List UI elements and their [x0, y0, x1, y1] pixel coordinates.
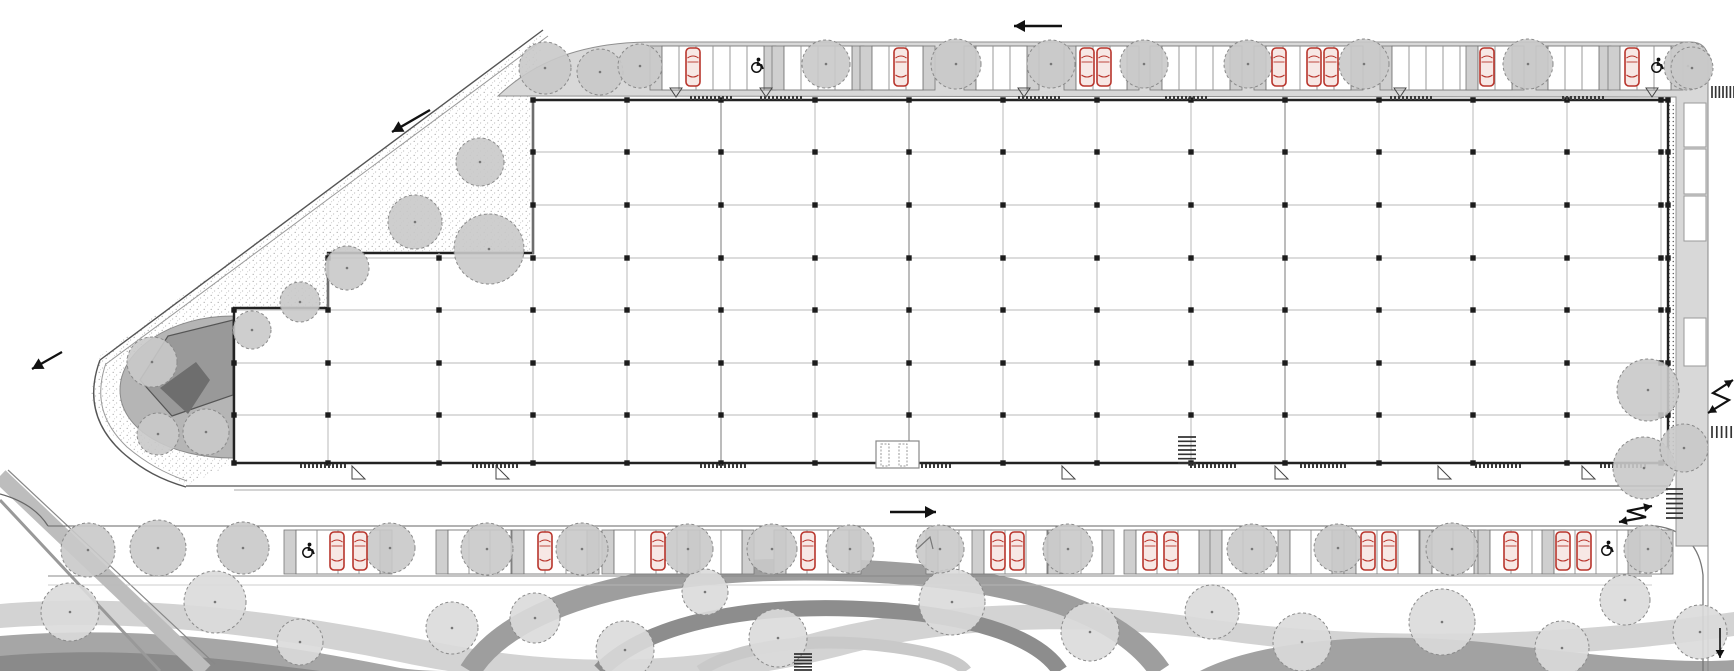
column-marker	[718, 255, 723, 260]
parked-car	[1097, 48, 1111, 86]
column-marker	[718, 360, 723, 365]
tree-trunk-dot	[687, 548, 690, 551]
tree-trunk-dot	[1247, 63, 1250, 66]
bay-divider	[972, 530, 984, 574]
bay-divider	[1542, 530, 1554, 574]
column-marker	[812, 255, 817, 260]
bay-divider	[1478, 530, 1490, 574]
parked-car	[1577, 532, 1591, 570]
tree-trunk-dot	[1561, 647, 1564, 650]
column-marker	[718, 412, 723, 417]
tree-trunk-dot	[599, 71, 602, 74]
column-marker	[1470, 97, 1475, 102]
bay-divider	[284, 530, 296, 574]
column-marker	[1000, 149, 1005, 154]
column-marker	[812, 202, 817, 207]
column-marker	[436, 255, 441, 260]
column-marker	[1564, 360, 1569, 365]
column-marker	[1282, 97, 1287, 102]
tree-trunk-dot	[1211, 611, 1214, 614]
column-marker	[1470, 202, 1475, 207]
site-plan-canvas	[0, 0, 1734, 671]
column-marker	[1376, 149, 1381, 154]
tree-trunk-dot	[1143, 63, 1146, 66]
arrow-head	[1643, 503, 1652, 512]
column-marker	[1658, 202, 1663, 207]
bay-divider	[1278, 530, 1290, 574]
parked-car	[1361, 532, 1375, 570]
column-marker	[1564, 460, 1569, 465]
door-swing-mark	[352, 466, 365, 479]
column-marker	[1376, 307, 1381, 312]
column-marker	[530, 412, 535, 417]
column-marker	[1282, 412, 1287, 417]
column-marker	[1564, 307, 1569, 312]
tree-trunk-dot	[87, 549, 90, 552]
bay-divider	[1102, 530, 1114, 574]
handicap-icon	[1657, 58, 1661, 62]
column-marker	[1564, 202, 1569, 207]
column-marker	[624, 412, 629, 417]
column-marker	[1665, 149, 1670, 154]
tree-trunk-dot	[299, 641, 302, 644]
parked-car	[1556, 532, 1570, 570]
tree-trunk-dot	[1301, 641, 1304, 644]
tree-trunk-dot	[486, 548, 489, 551]
tree-trunk-dot	[624, 649, 627, 652]
column-marker	[1564, 149, 1569, 154]
door-swing-mark	[1062, 466, 1075, 479]
column-marker	[906, 360, 911, 365]
parked-car	[1080, 48, 1094, 86]
column-marker	[1470, 360, 1475, 365]
north-parking-bay-group	[976, 46, 1027, 90]
tree-trunk-dot	[825, 63, 828, 66]
column-marker	[624, 202, 629, 207]
parked-car	[1164, 532, 1178, 570]
column-marker	[1000, 307, 1005, 312]
parked-car	[1307, 48, 1321, 86]
tree-trunk-dot	[1251, 548, 1254, 551]
tree-trunk-dot	[1683, 447, 1686, 450]
column-marker	[1376, 202, 1381, 207]
tree-trunk-dot	[299, 301, 302, 304]
column-marker	[1188, 255, 1193, 260]
parked-car	[330, 532, 344, 570]
column-marker	[1470, 149, 1475, 154]
column-marker	[1376, 460, 1381, 465]
bay-divider	[1124, 530, 1136, 574]
column-marker	[718, 149, 723, 154]
column-marker	[624, 307, 629, 312]
door-swing-mark	[1438, 466, 1451, 479]
tree-trunk-dot	[346, 267, 349, 270]
tree-trunk-dot	[242, 547, 245, 550]
tree-trunk-dot	[771, 548, 774, 551]
column-marker	[624, 460, 629, 465]
column-marker	[1376, 360, 1381, 365]
tree-trunk-dot	[1451, 548, 1454, 551]
column-marker	[812, 412, 817, 417]
column-marker	[1658, 97, 1663, 102]
column-marker	[1665, 255, 1670, 260]
tree-trunk-dot	[1643, 467, 1646, 470]
tree-trunk-dot	[955, 63, 958, 66]
bay-divider	[1199, 530, 1211, 574]
arrow-head	[925, 506, 936, 518]
tree-trunk-dot	[1647, 548, 1650, 551]
column-marker	[624, 360, 629, 365]
door-swing-mark	[1582, 466, 1595, 479]
column-marker	[1470, 460, 1475, 465]
column-marker	[906, 255, 911, 260]
column-marker	[1282, 460, 1287, 465]
column-marker	[530, 255, 535, 260]
column-marker	[1665, 97, 1670, 102]
column-marker	[325, 307, 330, 312]
column-marker	[1658, 307, 1663, 312]
bay-divider	[512, 530, 524, 574]
parked-car	[1382, 532, 1396, 570]
column-marker	[1470, 412, 1475, 417]
parked-car	[991, 532, 1005, 570]
column-marker	[624, 149, 629, 154]
tree-trunk-dot	[1337, 547, 1340, 550]
tree-trunk-dot	[157, 433, 160, 436]
entrance-door-leaf	[899, 444, 907, 466]
tree-trunk-dot	[205, 431, 208, 434]
column-marker	[1376, 412, 1381, 417]
bay-divider	[1210, 530, 1222, 574]
parked-car	[801, 532, 815, 570]
column-marker	[1658, 149, 1663, 154]
column-marker	[718, 202, 723, 207]
column-marker	[1000, 97, 1005, 102]
column-marker	[1658, 255, 1663, 260]
column-marker	[1282, 149, 1287, 154]
tree-trunk-dot	[414, 221, 417, 224]
parked-car	[1504, 532, 1518, 570]
north-parking-bay-group	[1392, 46, 1477, 90]
parked-car	[651, 532, 665, 570]
tree-trunk-dot	[1691, 67, 1694, 70]
column-marker	[718, 307, 723, 312]
entrance-door-leaf	[881, 444, 889, 466]
tree-trunk-dot	[151, 361, 154, 364]
tree-trunk-dot	[1050, 63, 1053, 66]
parked-car	[1272, 48, 1286, 86]
tree-trunk-dot	[704, 591, 707, 594]
tree-trunk-dot	[69, 611, 72, 614]
tree-trunk-dot	[1647, 389, 1650, 392]
tree-trunk-dot	[251, 329, 254, 332]
arrow-head	[1014, 20, 1025, 32]
parked-car	[538, 532, 552, 570]
column-marker	[1282, 360, 1287, 365]
column-marker	[530, 202, 535, 207]
tree-trunk-dot	[1363, 63, 1366, 66]
column-marker	[530, 360, 535, 365]
column-marker	[906, 202, 911, 207]
bay-divider	[860, 46, 872, 90]
column-marker	[325, 360, 330, 365]
north-parking-bay-group	[1548, 46, 1599, 90]
tree-trunk-dot	[1624, 599, 1627, 602]
column-marker	[1564, 255, 1569, 260]
column-marker	[1470, 255, 1475, 260]
column-marker	[906, 97, 911, 102]
column-marker	[436, 360, 441, 365]
column-marker	[325, 412, 330, 417]
tree-trunk-dot	[389, 547, 392, 550]
column-marker	[1188, 202, 1193, 207]
tree-trunk-dot	[451, 627, 454, 630]
parked-car	[1625, 48, 1639, 86]
column-marker	[1188, 307, 1193, 312]
column-marker	[1094, 412, 1099, 417]
tree-trunk-dot	[1441, 621, 1444, 624]
column-marker	[231, 307, 236, 312]
east-parking-bay	[1684, 318, 1706, 366]
parked-car	[894, 48, 908, 86]
handicap-icon	[308, 543, 312, 547]
tree-trunk-dot	[1089, 631, 1092, 634]
column-marker	[1000, 412, 1005, 417]
bay-divider	[436, 530, 448, 574]
tree-trunk-dot	[1067, 548, 1070, 551]
column-marker	[1094, 149, 1099, 154]
column-marker	[812, 149, 817, 154]
arrow-head	[1716, 650, 1725, 658]
column-marker	[1000, 202, 1005, 207]
column-marker	[1000, 255, 1005, 260]
column-marker	[1094, 255, 1099, 260]
tree-trunk-dot	[777, 637, 780, 640]
tree-trunk-dot	[214, 601, 217, 604]
column-marker	[906, 412, 911, 417]
column-marker	[1376, 255, 1381, 260]
column-marker	[1470, 307, 1475, 312]
column-marker	[906, 149, 911, 154]
tree-trunk-dot	[544, 67, 547, 70]
tree-trunk-dot	[157, 547, 160, 550]
site-plan-svg	[0, 0, 1734, 671]
parked-car	[1143, 532, 1157, 570]
bay-divider	[1466, 46, 1478, 90]
column-marker	[1282, 202, 1287, 207]
parked-car	[353, 532, 367, 570]
handicap-icon	[757, 58, 761, 62]
tree-trunk-dot	[951, 601, 954, 604]
parked-car	[686, 48, 700, 86]
column-marker	[231, 360, 236, 365]
column-marker	[812, 460, 817, 465]
tree-trunk-dot	[479, 161, 482, 164]
column-marker	[1000, 460, 1005, 465]
column-marker	[231, 412, 236, 417]
column-marker	[1188, 412, 1193, 417]
column-marker	[1000, 360, 1005, 365]
column-marker	[1188, 149, 1193, 154]
tree-trunk-dot	[488, 248, 491, 251]
column-marker	[1188, 360, 1193, 365]
column-marker	[1094, 307, 1099, 312]
column-marker	[1094, 460, 1099, 465]
column-marker	[906, 307, 911, 312]
column-marker	[436, 307, 441, 312]
column-marker	[1094, 360, 1099, 365]
column-marker	[812, 97, 817, 102]
column-marker	[624, 97, 629, 102]
door-swing-mark	[496, 466, 509, 479]
door-swing-mark	[1275, 466, 1288, 479]
bay-divider	[772, 46, 784, 90]
tree-trunk-dot	[1699, 631, 1702, 634]
column-marker	[1376, 97, 1381, 102]
column-marker	[530, 149, 535, 154]
tree-trunk-dot	[849, 548, 852, 551]
column-marker	[1282, 255, 1287, 260]
column-marker	[530, 307, 535, 312]
tree-trunk-dot	[639, 65, 642, 68]
tree-trunk-dot	[939, 548, 942, 551]
east-parking-bay	[1684, 103, 1706, 147]
column-marker	[1094, 202, 1099, 207]
column-marker	[812, 360, 817, 365]
bay-divider	[1608, 46, 1620, 90]
column-marker	[1665, 307, 1670, 312]
column-marker	[812, 307, 817, 312]
column-marker	[530, 460, 535, 465]
tree-trunk-dot	[534, 617, 537, 620]
column-marker	[1564, 412, 1569, 417]
column-marker	[436, 460, 441, 465]
column-marker	[530, 97, 535, 102]
parked-car	[1324, 48, 1338, 86]
column-marker	[624, 255, 629, 260]
east-parking-bay	[1684, 196, 1706, 241]
column-marker	[1094, 97, 1099, 102]
parked-car	[1010, 532, 1024, 570]
east-parking-bay	[1684, 149, 1706, 194]
column-marker	[231, 460, 236, 465]
arrow-head	[1619, 516, 1628, 525]
column-marker	[436, 412, 441, 417]
tree-trunk-dot	[581, 548, 584, 551]
handicap-icon	[1607, 541, 1611, 545]
tree-trunk-dot	[1527, 63, 1530, 66]
column-marker	[1282, 307, 1287, 312]
parked-car	[1480, 48, 1494, 86]
tree	[596, 621, 654, 671]
column-marker	[1665, 202, 1670, 207]
